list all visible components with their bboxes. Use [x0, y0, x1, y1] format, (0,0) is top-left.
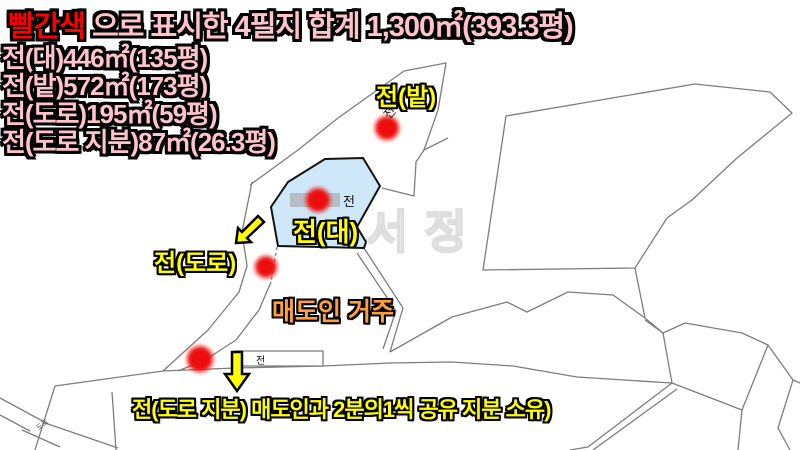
label-road-share-note: 전(도로 지분) 매도인과 2분의1씩 공유 지분 소유): [132, 392, 550, 424]
red-marker-house: [306, 188, 330, 212]
cadastral-label-jeon-bottom: 전: [256, 352, 265, 367]
boundary-line: [645, 320, 800, 383]
label-house: 전(대): [293, 212, 358, 249]
boundary-line: [483, 84, 792, 270]
boundary-line: [390, 292, 663, 352]
boundary-line: [112, 392, 116, 450]
summary-line-4: 전(도로 지분)87㎡(26.3평): [2, 128, 275, 156]
summary-line-1: 전(대)446㎡(135평): [2, 44, 207, 72]
boundary-line: [0, 398, 118, 448]
label-field: 전(밭): [376, 77, 436, 112]
summary-line-2: 전(밭)572㎡(173평): [2, 72, 207, 100]
page-title: 빨간색 으로 표시한 4필지 합계 1,300㎡(393.3평): [8, 3, 573, 45]
boundary-line: [635, 268, 645, 318]
label-road: 전(도로): [154, 243, 236, 278]
boundary-line: [593, 389, 677, 450]
boundary-line: [742, 345, 768, 410]
cadastral-label-jeon-center: 전: [343, 191, 355, 210]
red-marker-road-share: [187, 346, 213, 372]
boundary-line: [672, 383, 742, 450]
boundary-line: [778, 380, 793, 450]
summary-line-3: 전(도로)195㎡(59평): [2, 100, 217, 128]
boundary-line: [570, 333, 672, 450]
arrow-to-road-icon: [236, 216, 264, 243]
title-highlight: 빨간색: [8, 11, 85, 43]
title-rest: 으로 표시한 4필지 합계 1,300㎡(393.3평): [85, 11, 573, 43]
annotated-cadastral-map: 서정 전 전 전 도로 전(밭) 전(대) 전(도로) 매도인 거주 전(도로 …: [0, 0, 800, 450]
red-marker-road: [255, 256, 277, 278]
watermark: 서정: [366, 196, 483, 262]
small-parcel-rect: [235, 351, 323, 366]
boundary-line: [0, 415, 30, 431]
road-edge-line: [55, 362, 672, 386]
red-marker-field: [375, 116, 399, 140]
label-seller-residence: 매도인 거주: [272, 292, 394, 328]
